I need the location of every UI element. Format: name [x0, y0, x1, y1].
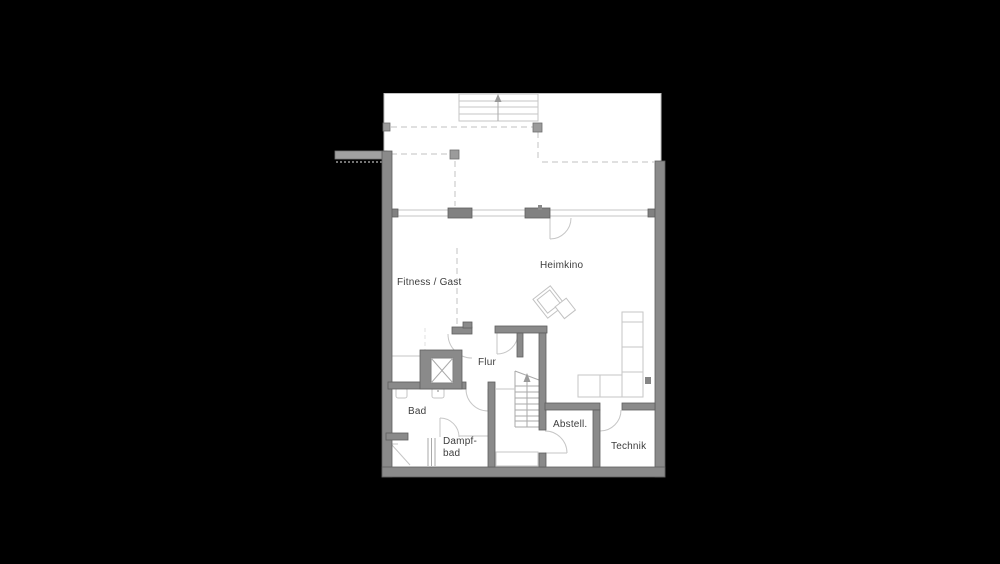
elevator-icon [431, 358, 453, 383]
room-label-bad: Bad [408, 406, 426, 417]
wall-fixture-marker [645, 377, 651, 384]
closet-icon [391, 356, 422, 382]
room-label-abstell: Abstell. [553, 419, 587, 430]
window-pier [448, 208, 472, 218]
room-label-fitness-gast: Fitness / Gast [397, 277, 462, 288]
post-marker [383, 123, 390, 131]
room-label-heimkino: Heimkino [540, 260, 583, 271]
understair-niche [496, 452, 538, 466]
window-pier [525, 208, 550, 218]
wall-left [382, 151, 392, 477]
exterior-wall-stub [335, 151, 388, 162]
exterior-stairs-icon [459, 94, 538, 121]
wall-right [655, 161, 665, 477]
room-label-dampfbad: Dampf- bad [443, 436, 477, 459]
post-marker [450, 150, 459, 159]
room-label-technik: Technik [611, 441, 646, 452]
wall-bottom [382, 467, 665, 477]
band-tick [538, 205, 542, 210]
floorplan-drawing [0, 0, 1000, 564]
room-label-flur: Flur [478, 357, 496, 368]
post-marker [533, 123, 542, 132]
floorplan-canvas: Fitness / Gast Heimkino Flur Bad Dampf- … [0, 0, 1000, 564]
